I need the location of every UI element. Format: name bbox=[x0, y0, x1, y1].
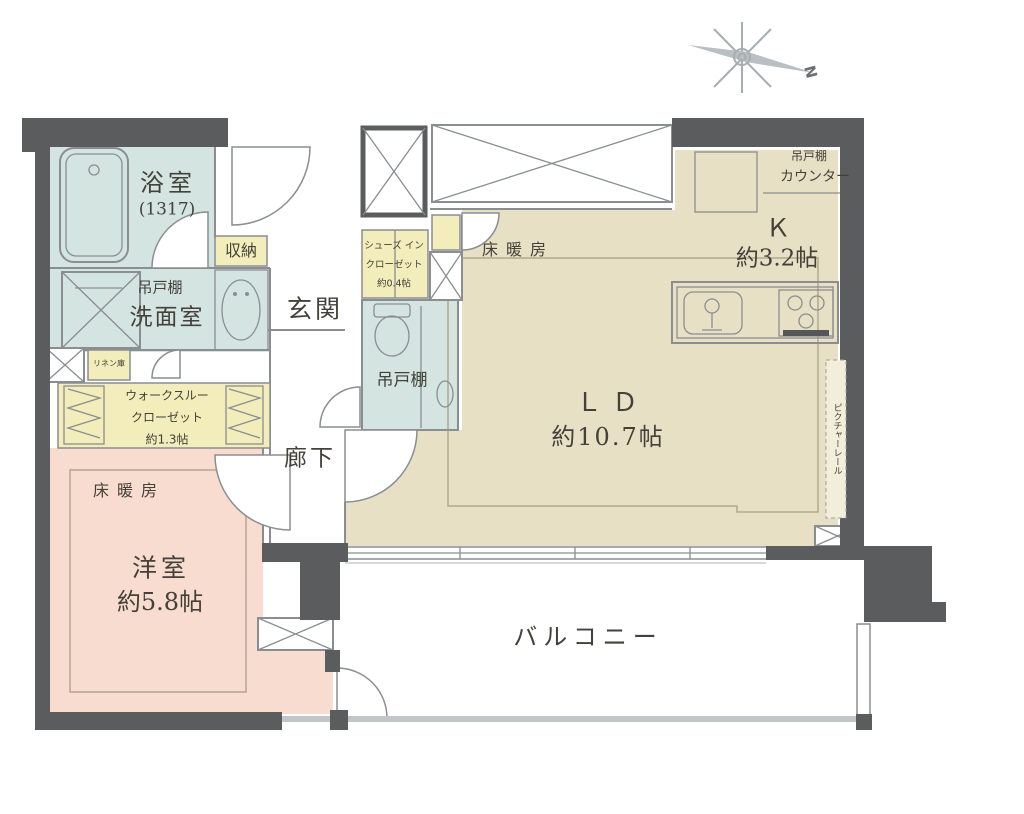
kitchen-label: Ｋ bbox=[765, 216, 790, 241]
sic-line2: クローゼット bbox=[364, 256, 424, 275]
small-storage-box bbox=[432, 215, 460, 250]
ld-heating-label: 床暖房 bbox=[482, 242, 554, 258]
bathroom-label: 浴室 bbox=[140, 171, 196, 195]
kitchen-size-label: 約3.2帖 bbox=[736, 248, 819, 271]
linen-storage-label: リネン庫 bbox=[93, 360, 125, 368]
wtc-line1: ウォークスルー bbox=[125, 385, 209, 407]
bathroom-size-label: (1317) bbox=[139, 202, 196, 219]
floor-plan: 浴室 (1317) 吊戸棚 洗面室 収納 リネン庫 ウォークスルー クローゼット… bbox=[0, 0, 1024, 814]
ld-label: ＬＤ bbox=[576, 390, 648, 416]
western-room-heating-label: 床暖房 bbox=[93, 483, 165, 499]
compass-icon bbox=[688, 22, 814, 93]
hall-storage-label: 収納 bbox=[225, 243, 257, 259]
balcony-label: バルコニー bbox=[513, 625, 663, 649]
toilet-door-arc bbox=[320, 387, 360, 427]
washroom-label: 洗面室 bbox=[130, 307, 205, 330]
hallway-label: 廊下 bbox=[284, 448, 336, 471]
wtc-size: 約1.3帖 bbox=[125, 429, 209, 451]
balcony-edge bbox=[282, 716, 868, 722]
washroom-cabinet-label: 吊戸棚 bbox=[137, 281, 182, 296]
front-door-arc bbox=[232, 147, 310, 225]
wtc-line2: クローゼット bbox=[125, 407, 209, 429]
sic-line1: シューズ イン bbox=[364, 237, 424, 256]
balcony-side-window bbox=[857, 624, 870, 716]
toilet-cabinet-label: 吊戸棚 bbox=[377, 373, 428, 390]
entrance-label: 玄関 bbox=[287, 297, 343, 322]
kitchen-counter-label: カウンター bbox=[780, 170, 850, 184]
linen-door-arc bbox=[152, 350, 180, 378]
western-room-label: 洋室 bbox=[132, 556, 190, 581]
kitchen-cabinet-label: 吊戸棚 bbox=[791, 150, 827, 162]
sic-size: 約0.4帖 bbox=[364, 275, 424, 294]
toilet-floor bbox=[362, 300, 458, 430]
ld-size-label: 約10.7帖 bbox=[551, 425, 664, 449]
walk-through-closet-label: ウォークスルー クローゼット 約1.3帖 bbox=[125, 385, 209, 452]
shoes-in-closet-label: シューズ イン クローゼット 約0.4帖 bbox=[364, 237, 424, 294]
picture-rail-label: ピクチャーレール bbox=[832, 403, 841, 475]
western-room-size-label: 約5.8帖 bbox=[117, 590, 203, 614]
